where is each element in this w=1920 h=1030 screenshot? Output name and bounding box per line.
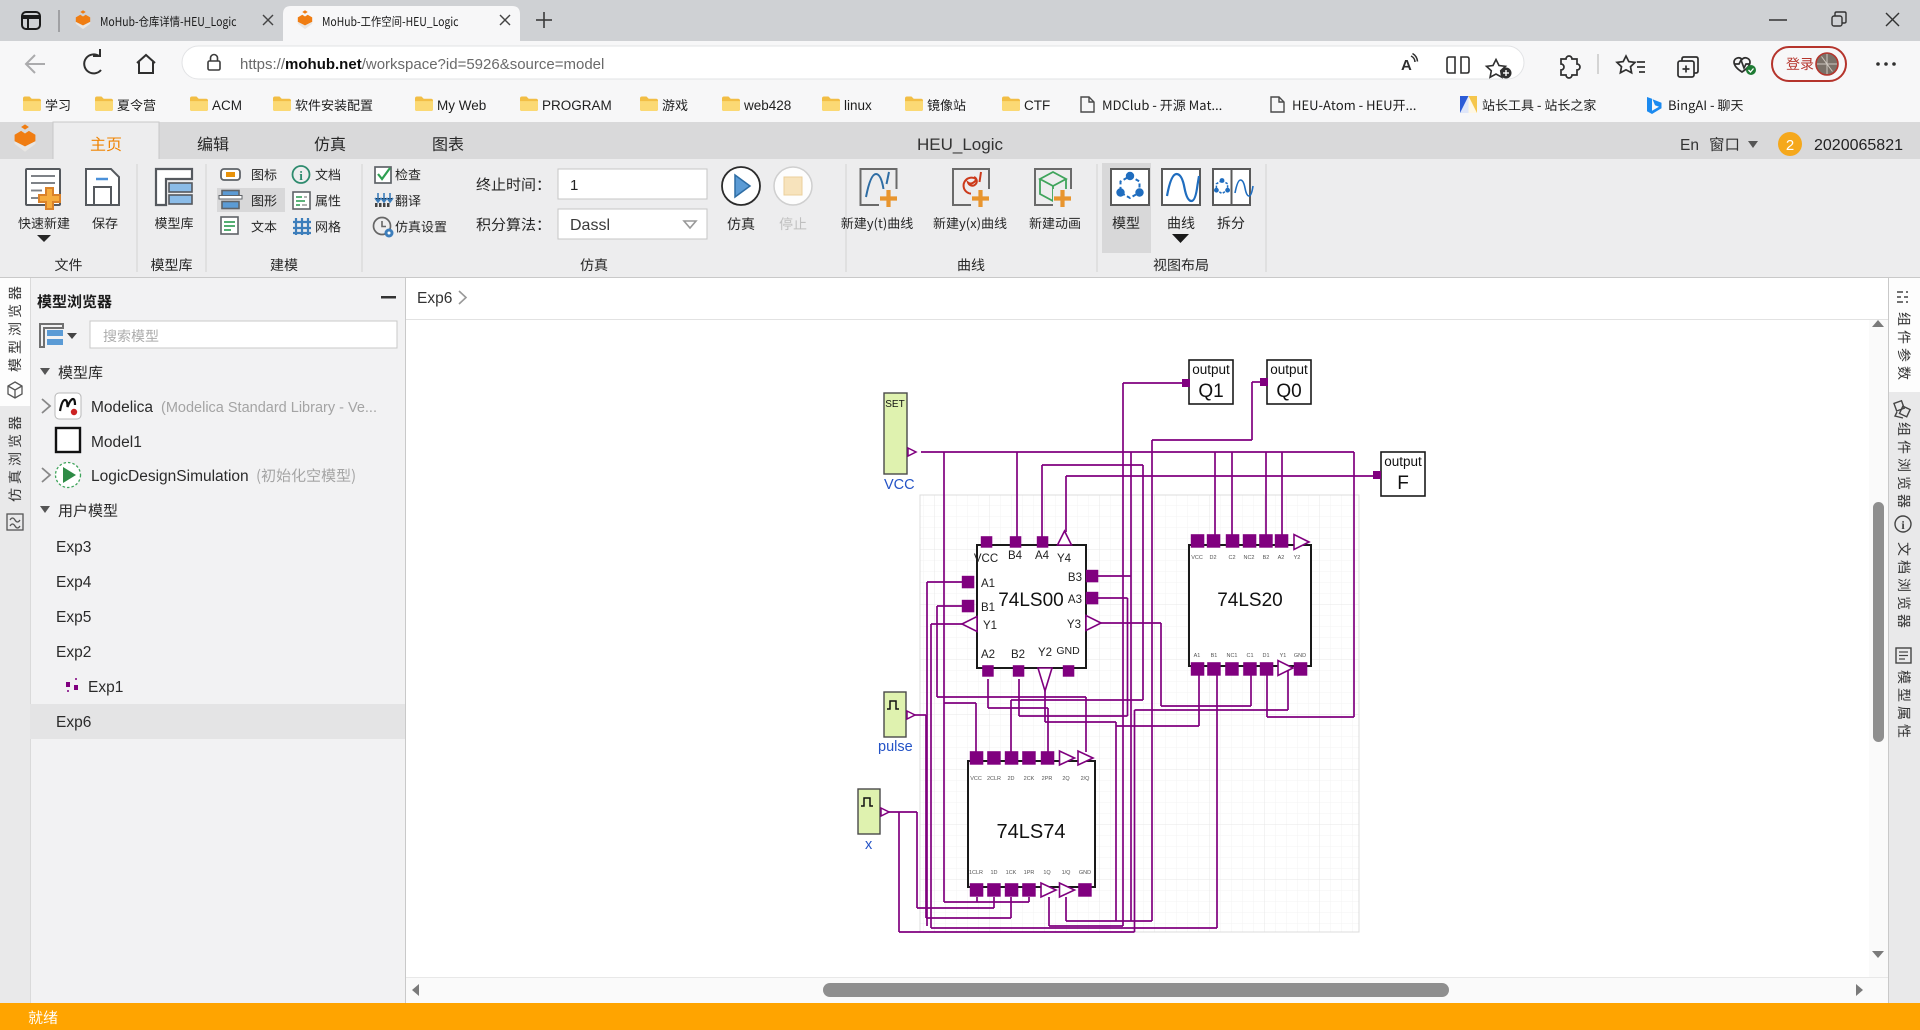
svg-text:VCC: VCC [974,553,998,565]
svg-text:A2: A2 [981,649,995,661]
svg-text:A4: A4 [1035,550,1050,562]
svg-text:74LS20: 74LS20 [1217,590,1283,611]
svg-text:GND: GND [1056,645,1080,657]
svg-text:74LS00: 74LS00 [998,590,1064,611]
svg-text:B1: B1 [1211,653,1218,659]
svg-text:Model1: Model1 [91,434,142,451]
svg-text:Exp6: Exp6 [56,714,91,731]
svg-text:Exp2: Exp2 [56,644,91,661]
svg-text:D2: D2 [1209,555,1216,561]
svg-text:1/Q: 1/Q [1062,870,1072,876]
svg-text:Exp3: Exp3 [56,539,91,556]
svg-text:2020065821: 2020065821 [1814,137,1903,154]
svg-text:A1: A1 [981,578,995,590]
svg-text:2CK: 2CK [1024,776,1035,782]
svg-text:B2: B2 [1011,649,1025,661]
svg-text:Dassl: Dassl [570,217,610,234]
svg-text:HEU_Logic: HEU_Logic [917,135,1003,154]
svg-text:Y2: Y2 [1038,647,1052,659]
svg-text:B4: B4 [1008,550,1023,562]
svg-text:Y2: Y2 [1294,555,1301,561]
svg-text:1CK: 1CK [1006,870,1017,876]
svg-text:GND: GND [1294,653,1306,659]
svg-text:Exp5: Exp5 [56,609,91,626]
svg-text:linux: linux [844,98,872,113]
svg-text:Y1: Y1 [983,620,997,632]
svg-text:CTF: CTF [1024,98,1050,113]
svg-text:My Web: My Web [437,98,486,113]
svg-text:pulse: pulse [878,739,913,755]
svg-text:i: i [299,168,303,183]
svg-text:1Q: 1Q [1043,870,1051,876]
svg-text:Q0: Q0 [1276,381,1301,402]
svg-text:2CLR: 2CLR [987,776,1001,782]
svg-text:GND: GND [1079,870,1091,876]
svg-text:Exp6: Exp6 [417,290,452,307]
svg-text:output: output [1270,362,1308,377]
svg-text:B2: B2 [1263,555,1270,561]
svg-text:Modelica: Modelica [91,399,153,416]
svg-text:Y4: Y4 [1057,553,1072,565]
svg-text:output: output [1192,362,1230,377]
svg-text:https://mohub.net/workspace?id: https://mohub.net/workspace?id=5926&sour… [240,56,604,73]
svg-text:74LS74: 74LS74 [997,821,1066,843]
svg-text:PROGRAM: PROGRAM [542,98,612,113]
svg-text:1: 1 [570,177,578,194]
svg-text:2/Q: 2/Q [1081,776,1091,782]
svg-text:ACM: ACM [212,98,242,113]
svg-text:x: x [865,837,873,853]
svg-text:LogicDesignSimulation: LogicDesignSimulation [91,468,249,485]
svg-text:B3: B3 [1068,572,1082,584]
svg-text:2PR: 2PR [1042,776,1053,782]
svg-text:NC2: NC2 [1243,555,1254,561]
svg-text:C1: C1 [1246,653,1253,659]
svg-text:2: 2 [1786,137,1794,154]
svg-text:A2: A2 [1278,555,1285,561]
svg-text:A3: A3 [1068,594,1082,606]
svg-text:Y1: Y1 [1280,653,1287,659]
svg-text:B1: B1 [981,602,995,614]
svg-text:Y3: Y3 [1067,619,1081,631]
svg-text:1PR: 1PR [1024,870,1035,876]
svg-text:(Modelica Standard Library - V: (Modelica Standard Library - Ve... [161,400,377,416]
svg-text:VCC: VCC [884,477,915,493]
svg-text:C2: C2 [1228,555,1235,561]
svg-text:VCC: VCC [970,776,982,782]
svg-text:En: En [1680,137,1699,154]
svg-text:1CLR: 1CLR [969,870,983,876]
svg-text:NC1: NC1 [1226,653,1237,659]
svg-text:web428: web428 [743,98,791,113]
svg-text:Q1: Q1 [1198,381,1223,402]
svg-text:1D: 1D [990,870,997,876]
svg-text:VCC: VCC [1191,555,1203,561]
svg-text:F: F [1397,473,1409,494]
svg-text:Exp1: Exp1 [88,679,123,696]
svg-text:A: A [1401,57,1412,74]
svg-text:A1: A1 [1194,653,1201,659]
svg-text:Exp4: Exp4 [56,574,92,591]
svg-text:2D: 2D [1007,776,1014,782]
svg-text:output: output [1384,454,1422,469]
svg-text:D1: D1 [1262,653,1269,659]
svg-text:2Q: 2Q [1062,776,1070,782]
svg-text:SET: SET [885,399,904,410]
